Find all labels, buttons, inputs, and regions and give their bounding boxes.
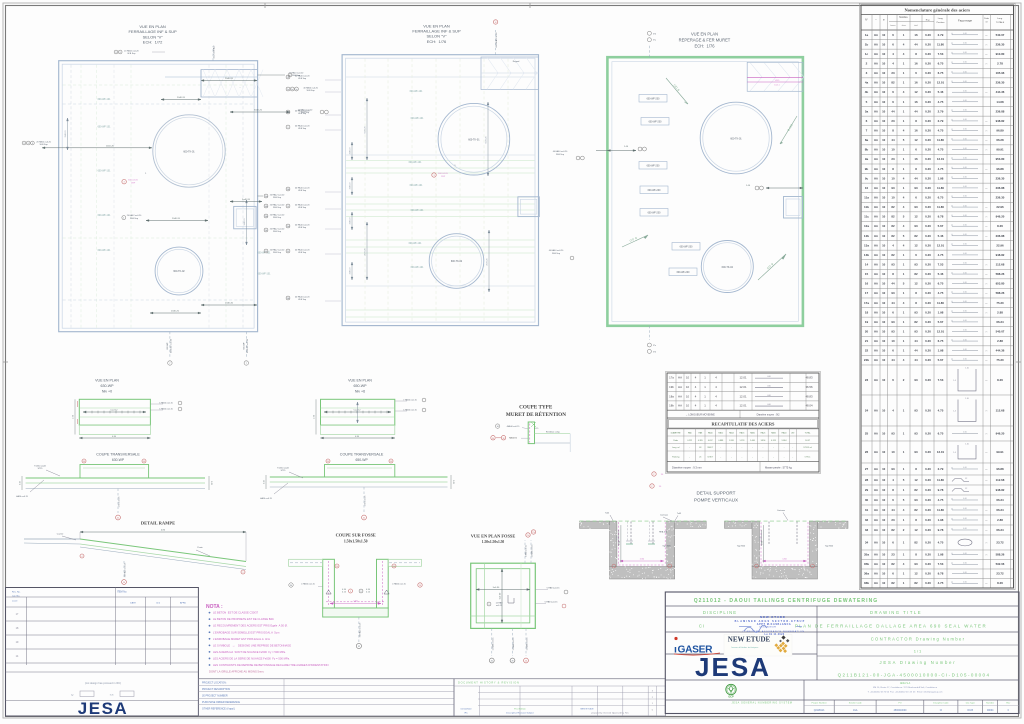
svg-text:12.01: 12.01: [740, 404, 747, 408]
svg-text:10: 10: [882, 553, 886, 557]
svg-text:↔: ↔: [985, 186, 988, 190]
svg-text:W-B Sup: W-B Sup: [307, 90, 316, 92]
svg-text:1.98: 1.98: [938, 553, 944, 557]
svg-text:23: 23: [891, 518, 895, 522]
svg-text:9: 9: [28, 143, 29, 145]
svg-text:20: 20: [865, 329, 869, 333]
svg-text:0.20: 0.20: [925, 518, 931, 522]
svg-text:93: 93: [914, 450, 918, 454]
svg-text:0.20: 0.20: [925, 291, 931, 295]
svg-text:W-B Sup: W-B Sup: [273, 217, 282, 219]
svg-text:3.854: 3.854: [761, 440, 766, 442]
svg-text:26: 26: [525, 661, 527, 663]
svg-text:25: 25: [699, 457, 701, 459]
svg-text:Façonnage: Façonnage: [958, 19, 972, 23]
svg-text:5040.20: 5040.20: [254, 110, 263, 112]
svg-text:W-B Sup: W-B Sup: [298, 113, 307, 115]
svg-text:26: 26: [419, 585, 421, 587]
svg-text:8a: 8a: [865, 138, 869, 142]
svg-text:10: 10: [882, 320, 886, 324]
svg-text:2040.20: 2040.20: [177, 97, 186, 99]
svg-text:HA40: HA40: [782, 431, 787, 434]
svg-text:93: 93: [914, 329, 918, 333]
svg-text:2040.20: 2040.20: [172, 218, 181, 220]
svg-text:↔: ↔: [985, 167, 988, 171]
svg-text:0.20: 0.20: [925, 33, 931, 37]
svg-text:32: 32: [865, 518, 869, 522]
svg-text:0.20: 0.20: [925, 71, 931, 75]
svg-text:4.60: 4.60: [963, 581, 967, 583]
svg-text:26: 26: [865, 450, 869, 454]
svg-text:600-WF-200: 600-WF-200: [647, 166, 660, 168]
svg-text:↔: ↔: [985, 119, 988, 123]
svg-text:600-WF-101: 600-WF-101: [409, 243, 422, 245]
svg-text:1.10: 1.10: [965, 367, 969, 369]
svg-text:COUPE TYPE: COUPE TYPE: [519, 405, 553, 411]
svg-text:Poids kg: Poids kg: [672, 457, 679, 459]
svg-text:16: 16: [865, 282, 869, 286]
svg-text:0.20: 0.20: [925, 148, 931, 152]
svg-text:0.20: 0.20: [925, 528, 931, 532]
svg-text:4.60: 4.60: [963, 110, 967, 112]
svg-text:Level: Level: [12, 601, 18, 603]
svg-text:11.80: 11.80: [937, 138, 944, 142]
svg-text:23.72: 23.72: [996, 572, 1004, 576]
svg-text:↔: ↔: [985, 528, 988, 532]
svg-text:CONTRACTOR Drawing Number: CONTRACTOR Drawing Number: [871, 637, 966, 642]
svg-text:HA: HA: [678, 376, 682, 380]
svg-text:5.67: 5.67: [938, 358, 944, 362]
svg-text:10: 10: [882, 329, 886, 333]
svg-text:4.60: 4.60: [963, 282, 967, 284]
svg-text:13a: 13a: [265, 196, 268, 198]
svg-text:18b: 18b: [669, 404, 674, 408]
svg-text:82: 82: [891, 215, 895, 219]
svg-text:1.60 e=0.15: 1.60 e=0.15: [365, 495, 367, 507]
svg-text:600-WF-101: 600-WF-101: [98, 215, 111, 217]
svg-text:36: 36: [390, 461, 392, 463]
svg-text:13b: 13b: [864, 253, 869, 257]
svg-text:0.888: 0.888: [718, 440, 723, 442]
svg-text:40x0.20: 40x0.20: [106, 146, 115, 148]
svg-text:10: 10: [882, 61, 886, 65]
svg-text:4.60: 4.60: [963, 498, 967, 500]
svg-text:HA: HA: [874, 339, 878, 343]
svg-text:10: 10: [882, 291, 886, 295]
svg-text:40 HA10 e=0.20: 40 HA10 e=0.20: [549, 249, 564, 252]
svg-text:Q211B121-00-JGA-4500010000-CI-: Q211B121-00-JGA-4500010000-CI-D105-00004: [838, 673, 991, 678]
svg-text:INGENIEUR: INGENIEUR: [760, 626, 777, 628]
svg-text:4.75: 4.75: [938, 291, 944, 295]
svg-text:4.75: 4.75: [938, 540, 944, 544]
svg-text:4.60: 4.60: [963, 349, 967, 351]
svg-text:2.466: 2.466: [750, 440, 755, 442]
svg-text:HA: HA: [874, 518, 878, 522]
svg-text:by:: by:: [71, 695, 74, 697]
svg-text:↔: ↔: [985, 33, 988, 37]
svg-text:14: 14: [865, 262, 869, 266]
svg-text:0.20: 0.20: [925, 215, 931, 219]
svg-text:600-WF-101: 600-WF-101: [409, 162, 422, 164]
svg-text:10: 10: [882, 301, 886, 305]
svg-text:10: 10: [882, 488, 886, 492]
svg-text:HA: HA: [678, 385, 682, 389]
svg-text:17: 17: [865, 291, 869, 295]
svg-text:12: 12: [914, 528, 918, 532]
svg-text:0.20: 0.20: [925, 81, 931, 85]
svg-text:HA10 e=0.15: HA10 e=0.15: [260, 497, 273, 500]
svg-text:↔: ↔: [985, 128, 988, 132]
svg-text:650-WP: 650-WP: [355, 458, 368, 462]
svg-text:10: 10: [882, 358, 886, 362]
svg-text:HA: HA: [874, 320, 878, 324]
svg-text:32: 32: [358, 646, 360, 648]
svg-text:11.80: 11.80: [937, 478, 944, 482]
svg-text:22: 22: [865, 349, 869, 353]
svg-text:236.30: 236.30: [996, 81, 1005, 85]
svg-text:5.46: 5.46: [938, 272, 944, 276]
svg-text:↔: ↔: [985, 508, 988, 512]
svg-text:10: 10: [882, 408, 886, 412]
svg-text:HA: HA: [874, 224, 878, 228]
svg-text:16: 16: [914, 157, 918, 161]
svg-text:12: 12: [914, 478, 918, 482]
svg-text:↔: ↔: [985, 431, 988, 435]
svg-text:Number: Number: [986, 701, 994, 704]
svg-text:4.60: 4.60: [963, 129, 967, 131]
svg-text:0.20: 0.20: [925, 450, 931, 454]
svg-text:12.01: 12.01: [937, 329, 945, 333]
svg-text:W-B Sup: W-B Sup: [273, 252, 282, 254]
svg-text:4.60: 4.60: [963, 320, 967, 322]
svg-text:HA: HA: [678, 394, 682, 398]
svg-text:36a: 36a: [864, 572, 869, 576]
svg-text:2.79: 2.79: [938, 119, 944, 123]
svg-text:Nombre: Nombre: [899, 16, 908, 19]
svg-text:11c: 11c: [864, 215, 869, 219]
svg-text:HA6: HA6: [688, 431, 692, 434]
svg-text:12.01: 12.01: [740, 394, 747, 398]
svg-text:0.20: 0.20: [925, 349, 931, 353]
svg-text:5040.20: 5040.20: [244, 219, 246, 226]
svg-text:23: 23: [891, 119, 895, 123]
svg-text:HA: HA: [874, 148, 878, 152]
svg-text:2.79: 2.79: [938, 33, 944, 37]
svg-text:HA: HA: [874, 272, 878, 276]
svg-text:4.75: 4.75: [938, 148, 944, 152]
svg-text:27a: 27a: [527, 535, 530, 537]
svg-text:4.60: 4.60: [963, 157, 967, 159]
svg-text:0.20: 0.20: [925, 128, 931, 132]
svg-text:10: 10: [882, 253, 886, 257]
svg-text:OTHER REFERENCE (if appl.): OTHER REFERENCE (if appl.): [202, 707, 235, 710]
svg-text:444.36: 444.36: [996, 349, 1005, 353]
svg-text:11.80: 11.80: [937, 205, 944, 209]
svg-text:APRD: APRD: [180, 602, 186, 605]
svg-text:DETAIL RAMPE: DETAIL RAMPE: [141, 521, 175, 526]
svg-text:13a: 13a: [864, 243, 869, 247]
svg-text:11.80: 11.80: [937, 301, 944, 305]
svg-text:82: 82: [891, 581, 895, 585]
svg-text:23: 23: [891, 553, 895, 557]
svg-text:REPERAGE & FER MURET: REPERAGE & FER MURET: [679, 38, 731, 43]
svg-text:Niv +6: Niv +6: [355, 389, 365, 393]
svg-text:93: 93: [914, 262, 918, 266]
svg-text:0.20: 0.20: [925, 498, 931, 502]
svg-text:4.60: 4.60: [963, 311, 967, 313]
svg-text:10: 10: [882, 498, 886, 502]
svg-text:10: 10: [882, 508, 886, 512]
svg-text:37a: 37a: [653, 40, 656, 42]
svg-text:LE RECOUVREMENT DES ACIERS EST: LE RECOUVREMENT DES ACIERS EST PRIS Egal…: [213, 624, 288, 628]
svg-text:Pente: Pente: [197, 546, 203, 549]
svg-text:HA10: HA10: [708, 431, 713, 434]
svg-text:112.68: 112.68: [996, 408, 1005, 412]
svg-text:Long. ml: Long. ml: [672, 447, 680, 449]
svg-text:↔: ↔: [985, 52, 988, 56]
svg-text:600-TK-01: 600-TK-01: [468, 139, 480, 142]
svg-text:600-WF-101: 600-WF-101: [98, 250, 111, 252]
svg-text:1: 1: [489, 604, 490, 606]
svg-text:0.617: 0.617: [708, 440, 713, 442]
svg-text:0.20: 0.20: [925, 301, 931, 305]
svg-text:14.87: 14.87: [805, 440, 810, 442]
svg-text:4.60: 4.60: [963, 119, 967, 121]
svg-text:0.20: 0.20: [925, 310, 931, 314]
svg-text:5x0.30: 5x0.30: [500, 592, 502, 599]
svg-text:1.208: 1.208: [729, 440, 734, 442]
svg-text:HA25: HA25: [761, 431, 766, 434]
svg-text:1.98: 1.98: [938, 349, 944, 353]
svg-text:82: 82: [914, 272, 918, 276]
svg-text:HA: HA: [874, 109, 878, 113]
svg-text:VUE EN PLAN: VUE EN PLAN: [348, 379, 372, 383]
svg-text:VUE EN PLAN: VUE EN PLAN: [95, 379, 119, 383]
svg-text:0.20: 0.20: [925, 176, 931, 180]
svg-text:12 HA8 e=0.15: 12 HA8 e=0.15: [526, 638, 529, 651]
svg-text:910.80: 910.80: [996, 52, 1005, 56]
svg-text:444.36: 444.36: [996, 90, 1005, 94]
svg-text:4.60: 4.60: [963, 100, 967, 102]
svg-text:6.75: 6.75: [938, 195, 944, 199]
svg-text:NEW ETUDE: NEW ETUDE: [728, 636, 771, 644]
svg-text:4.60: 4.60: [963, 244, 967, 246]
svg-text:5 HA8 e=0.15: 5 HA8 e=0.15: [545, 601, 559, 604]
svg-text:0.20: 0.20: [925, 358, 931, 362]
svg-text:Position: Position: [937, 21, 946, 24]
svg-text:10: 10: [882, 478, 886, 482]
svg-text:4.60: 4.60: [963, 148, 967, 150]
svg-text:4.60: 4.60: [767, 376, 770, 378]
svg-text:VRD: VRD: [775, 80, 780, 82]
svg-text:W-B Sup: W-B Sup: [40, 144, 49, 146]
svg-text:10: 10: [891, 195, 895, 199]
svg-text:44: 44: [891, 508, 895, 512]
svg-text:18: 18: [287, 77, 289, 79]
svg-text:HA14: HA14: [729, 431, 734, 434]
svg-text:NEW ETUDE: NEW ETUDE: [580, 709, 594, 711]
svg-text:CI: CI: [699, 624, 705, 629]
svg-text:5a: 5a: [865, 109, 869, 113]
svg-text:44: 44: [891, 301, 895, 305]
svg-text:10: 10: [882, 205, 886, 209]
svg-text:236.88: 236.88: [996, 109, 1005, 113]
svg-text:4.60: 4.60: [963, 467, 967, 469]
svg-text:W-B Sup: W-B Sup: [552, 253, 561, 255]
svg-text:93: 93: [914, 378, 918, 382]
svg-text:VUE EN PLAN: VUE EN PLAN: [691, 32, 718, 37]
svg-text:Ø/2: Ø/2: [791, 432, 794, 434]
svg-text:600-WF-200: 600-WF-200: [648, 190, 661, 192]
svg-text:4.75: 4.75: [938, 100, 944, 104]
svg-text:82: 82: [914, 234, 918, 238]
svg-text:(not design has proceed in IFC: (not design has proceed in IFC): [85, 681, 121, 685]
svg-text:8b: 8b: [865, 148, 869, 152]
svg-text:10: 10: [882, 224, 886, 228]
svg-text:HA: HA: [874, 157, 878, 161]
svg-text:4.75: 4.75: [938, 167, 944, 171]
svg-text:540.07: 540.07: [996, 329, 1005, 333]
svg-text:12: 12: [914, 243, 918, 247]
svg-text:↔: ↔: [985, 90, 988, 94]
svg-text:HA: HA: [874, 508, 878, 512]
svg-text:30 HA10 e=0.15: 30 HA10 e=0.15: [358, 622, 361, 637]
svg-text:N°: N°: [865, 19, 868, 22]
svg-text:HA: HA: [874, 42, 878, 46]
svg-text:4HA10 e=0.15: 4HA10 e=0.15: [507, 425, 521, 428]
svg-text:34: 34: [290, 585, 292, 587]
svg-text:2040.20: 2040.20: [486, 258, 488, 266]
svg-text:10: 10: [882, 138, 886, 142]
svg-text:0.20: 0.20: [925, 42, 931, 46]
svg-text:96.88: 96.88: [996, 467, 1004, 471]
svg-text:Regard: Regard: [513, 61, 520, 63]
svg-text:4.60: 4.60: [963, 62, 967, 64]
svg-text:600-WF-200: 600-WF-200: [647, 99, 660, 101]
svg-text:36: 36: [143, 461, 145, 463]
svg-text:630-WP: 630-WP: [112, 458, 125, 462]
svg-text:2040.20: 2040.20: [349, 183, 351, 190]
svg-text:HA: HA: [874, 291, 878, 295]
svg-text:14.68: 14.68: [996, 100, 1004, 104]
svg-text:2.79: 2.79: [938, 467, 944, 471]
svg-text:5749.7: 5749.7: [707, 457, 713, 459]
svg-text:0.20: 0.20: [925, 272, 931, 276]
svg-text:↔: ↔: [985, 205, 988, 209]
svg-text:4.75: 4.75: [938, 581, 944, 585]
svg-text:HA: HA: [874, 71, 878, 75]
svg-text:44: 44: [914, 339, 918, 343]
svg-text:5a: 5a: [296, 89, 298, 91]
svg-text:37a: 37a: [653, 345, 656, 347]
svg-text:5.67: 5.67: [938, 224, 944, 228]
svg-text:HA16: HA16: [740, 431, 745, 434]
svg-text:4.60: 4.60: [963, 224, 967, 226]
svg-text:HA: HA: [874, 450, 878, 454]
svg-text:600-WF-101: 600-WF-101: [411, 267, 424, 269]
svg-text:600.04.05: 600.04.05: [128, 180, 139, 182]
svg-text:93: 93: [914, 186, 918, 190]
svg-text:0.20: 0.20: [925, 562, 931, 566]
svg-text:W-B Sup: W-B Sup: [556, 154, 565, 156]
svg-text:540.07: 540.07: [996, 33, 1005, 37]
svg-text:1.4: 1.4: [953, 380, 956, 382]
svg-text:COUPE TRANSVERSALE: COUPE TRANSVERSALE: [340, 453, 384, 457]
svg-text:93: 93: [891, 262, 895, 266]
svg-text:10: 10: [882, 450, 886, 454]
svg-text:0.20: 0.20: [925, 186, 931, 190]
svg-text:↔: ↔: [985, 467, 988, 471]
svg-text:10: 10: [882, 562, 886, 566]
svg-text:HA: HA: [874, 498, 878, 502]
svg-text:0.20: 0.20: [925, 508, 931, 512]
svg-text:4.60: 4.60: [963, 186, 967, 188]
svg-text:93: 93: [914, 310, 918, 314]
svg-text:4.60: 4.60: [963, 215, 967, 217]
svg-text:4.60: 4.60: [963, 33, 967, 35]
svg-text:0.20: 0.20: [925, 157, 931, 161]
svg-text:Remblais comp.: Remblais comp.: [546, 431, 561, 433]
svg-text:9774.3 ml: 9774.3 ml: [803, 447, 812, 449]
svg-text:↔: ↔: [985, 272, 988, 276]
svg-text:22.96: 22.96: [996, 243, 1004, 247]
svg-text:24: 24: [865, 408, 869, 412]
svg-text:10: 10: [882, 176, 886, 180]
svg-text:HA: HA: [874, 408, 878, 412]
svg-text:0.20: 0.20: [925, 572, 931, 576]
svg-text:4.75: 4.75: [938, 408, 944, 412]
svg-text:1.10: 1.10: [965, 443, 969, 445]
svg-text:↔: ↔: [985, 581, 988, 585]
svg-text:4.60: 4.60: [963, 177, 967, 179]
svg-text:12: 12: [914, 215, 918, 219]
svg-text:16: 16: [914, 128, 918, 132]
svg-text:236.30: 236.30: [996, 176, 1005, 180]
svg-text:2.78: 2.78: [997, 61, 1003, 65]
svg-text:Diamètre moyen : 9.3 mm: Diamètre moyen : 9.3 mm: [672, 466, 702, 470]
svg-text:12 HA8 e=0.15: 12 HA8 e=0.15: [512, 638, 515, 651]
svg-text:↔: ↔: [985, 291, 988, 295]
svg-text:650-WP: 650-WP: [354, 384, 368, 388]
svg-text:600-WF-200: 600-WF-200: [649, 122, 662, 124]
svg-text:10: 10: [882, 310, 886, 314]
svg-text:600-TK-01: 600-TK-01: [730, 137, 742, 140]
svg-text:236.88: 236.88: [996, 186, 1005, 190]
svg-text:5a40.20: 5a40.20: [242, 199, 251, 201]
svg-text:82: 82: [891, 224, 895, 228]
svg-text:OCP: OCP: [728, 696, 734, 699]
svg-text:4.60: 4.60: [963, 553, 967, 555]
svg-text:1.4: 1.4: [953, 410, 956, 412]
svg-text:MURET DE RÉTENTION: MURET DE RÉTENTION: [506, 410, 566, 418]
svg-text:HA: HA: [874, 262, 878, 266]
svg-text:6.75: 6.75: [938, 71, 944, 75]
svg-text:0.15: 0.15: [535, 428, 539, 430]
svg-text:HA: HA: [874, 243, 878, 247]
svg-text:Poids: Poids: [673, 440, 678, 442]
svg-text:↔: ↔: [985, 408, 988, 412]
svg-text:7.53: 7.53: [938, 52, 944, 56]
svg-text:93: 93: [914, 498, 918, 502]
svg-text:946.20: 946.20: [996, 431, 1005, 435]
svg-text:2040.20: 2040.20: [65, 131, 67, 138]
svg-text:13c: 13c: [265, 230, 268, 232]
svg-text:600-WF-200: 600-WF-200: [680, 247, 693, 249]
svg-text:17a: 17a: [669, 376, 674, 380]
svg-text:0.20: 0.20: [925, 262, 931, 266]
svg-text:23: 23: [891, 71, 895, 75]
svg-text:6.313: 6.313: [771, 440, 776, 442]
